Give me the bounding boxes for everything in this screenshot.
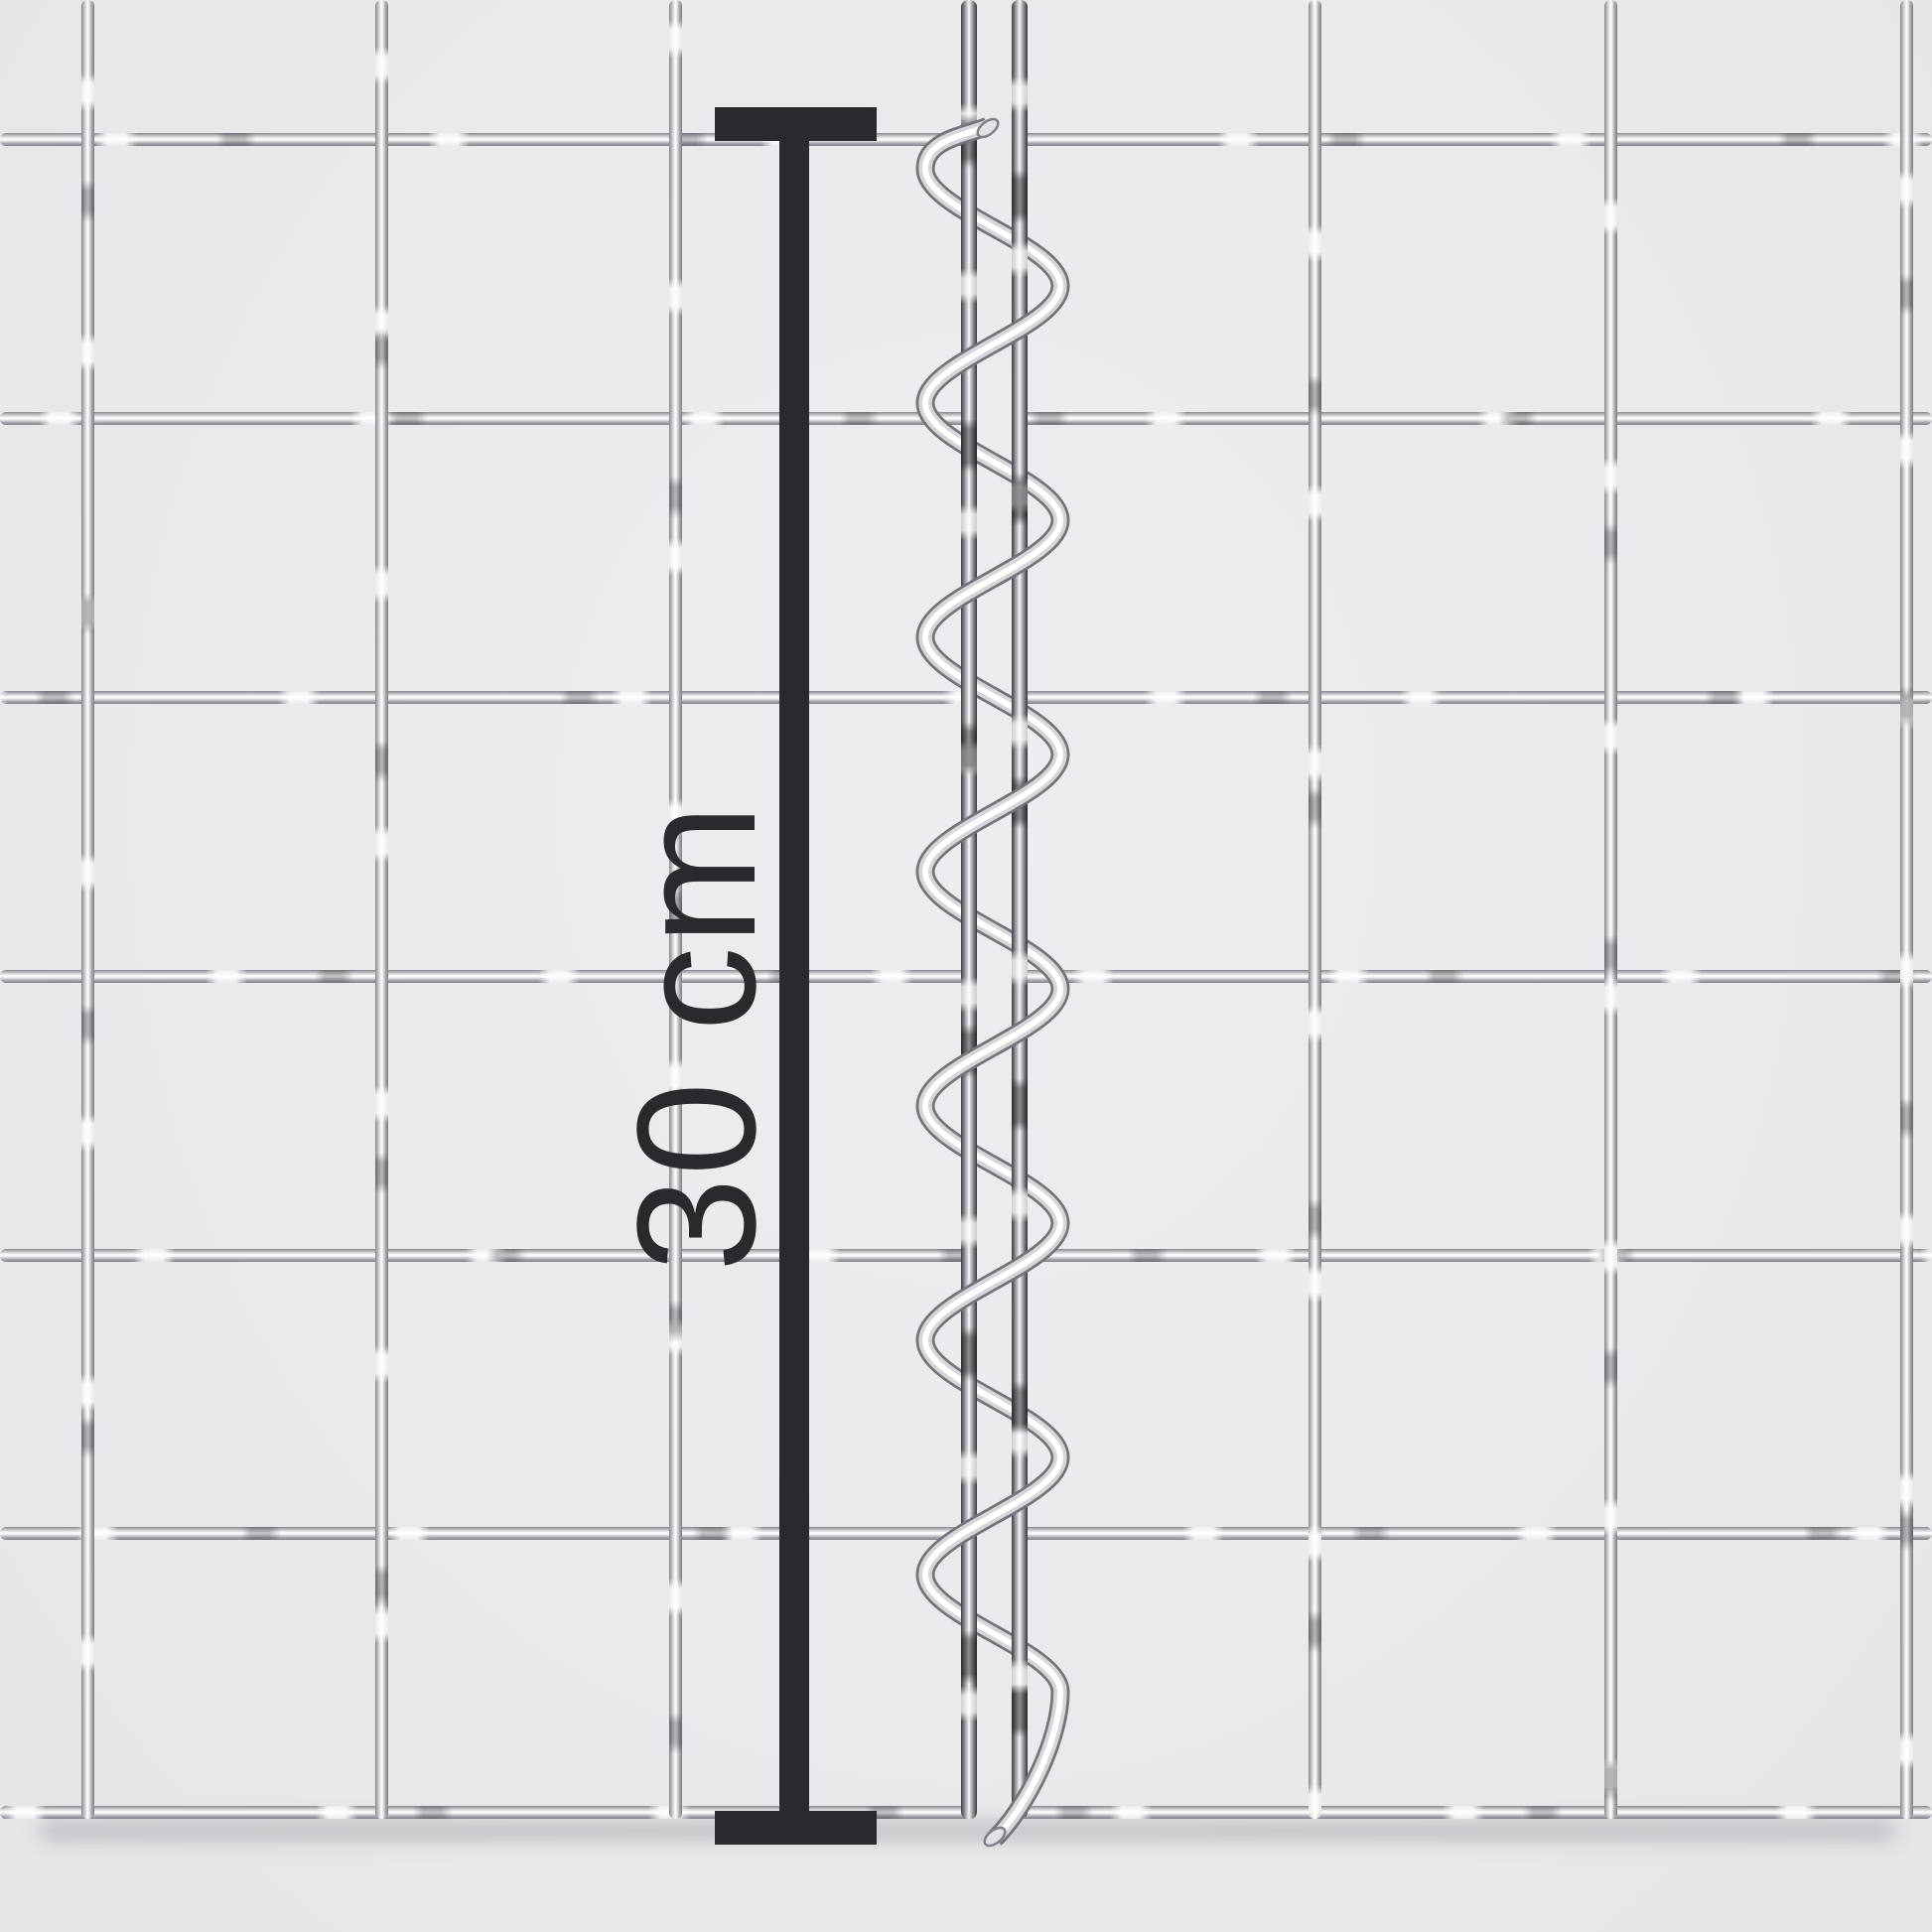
panel-edge-wire <box>1012 0 1028 1819</box>
product-render-stage: 30 cm <box>0 0 1932 1932</box>
v-wire <box>1604 0 1617 1819</box>
h-wire <box>0 1527 977 1540</box>
h-wire <box>0 412 977 425</box>
h-wire <box>0 691 977 704</box>
h-wire <box>1012 970 1932 983</box>
h-wire <box>1012 412 1932 425</box>
v-wire <box>1900 0 1913 1819</box>
h-wire <box>0 1249 977 1262</box>
ground-shadow <box>40 1821 1896 1841</box>
dimension-line-cap-top <box>715 107 877 141</box>
h-wire <box>1012 133 1932 146</box>
v-wire <box>81 0 94 1819</box>
v-wire <box>375 0 388 1819</box>
dimension-label: 30 cm <box>613 802 781 1272</box>
h-wire <box>1012 1806 1932 1819</box>
h-wire <box>1012 1527 1932 1540</box>
v-wire <box>1309 0 1321 1819</box>
h-wire <box>1012 691 1932 704</box>
h-wire <box>1012 1249 1932 1262</box>
h-wire <box>0 970 977 983</box>
panel-edge-wire <box>961 0 977 1819</box>
dimension-line-cap-bottom <box>715 1811 877 1845</box>
spiral-cut-end-top <box>975 115 1002 140</box>
